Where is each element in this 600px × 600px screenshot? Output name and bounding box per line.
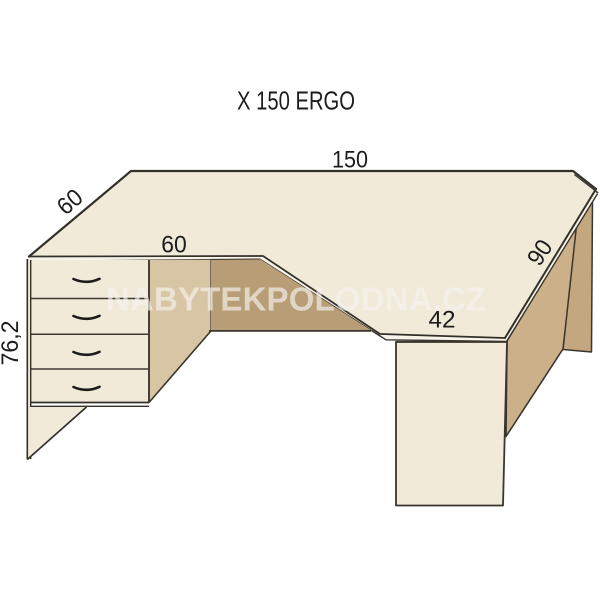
- svg-text:X 150 ERGO: X 150 ERGO: [237, 86, 355, 116]
- svg-text:NABYTEKPOLODNA.CZ: NABYTEKPOLODNA.CZ: [106, 281, 486, 318]
- svg-text:150: 150: [332, 147, 368, 174]
- svg-text:60: 60: [161, 232, 187, 259]
- svg-text:76,2: 76,2: [0, 321, 24, 366]
